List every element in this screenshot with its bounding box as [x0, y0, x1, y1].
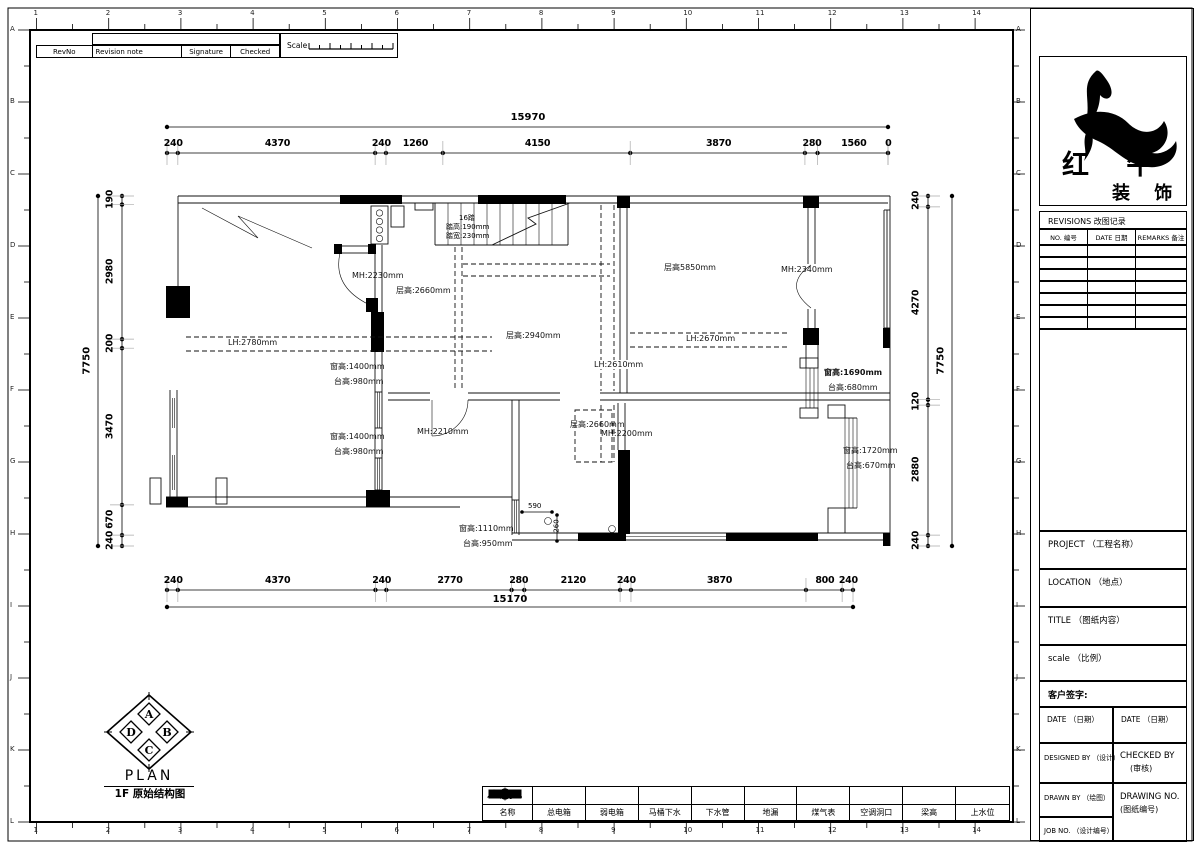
grid-number-bottom: 10	[683, 826, 692, 834]
grid-letter-left: A	[10, 25, 15, 33]
segment-dim-label: 240	[106, 520, 117, 560]
project-label: PROJECT （工程名称）	[1048, 538, 1138, 550]
segment-dim-label: 200	[106, 323, 117, 363]
grid-letter-left: F	[10, 385, 14, 393]
segment-dim-label: 240	[617, 576, 636, 587]
segment-dim-label: 3870	[707, 576, 732, 587]
scale-cell: Scale	[280, 33, 398, 58]
grid-number-bottom: 9	[611, 826, 615, 834]
title-block-panel: 红 牛 装 饰 REVISIONS 改图记录 NO. 编号 DATE 日期 RE…	[1030, 8, 1194, 841]
grid-number-top: 10	[683, 9, 692, 17]
grid-letter-right: B	[1016, 97, 1021, 105]
signature-header: Signature	[182, 46, 232, 57]
overall-dim-bottom: 15170	[485, 594, 535, 606]
grid-number-top: 2	[106, 9, 110, 17]
legend-item-name: 弱电箱	[586, 805, 639, 820]
window-height-label: 窗高:1690mm	[824, 368, 882, 377]
grid-letter-right: D	[1016, 241, 1021, 249]
compass-letter-a: A	[144, 708, 154, 721]
compass-letter-c: C	[145, 744, 154, 757]
job-no-label: JOB NO. （设计编号）	[1044, 825, 1113, 835]
ac-hole-icon	[850, 787, 903, 805]
grid-number-bottom: 2	[106, 826, 110, 834]
gas-meter-icon	[797, 787, 850, 805]
scale-bar	[307, 38, 397, 54]
grid-letter-right: G	[1016, 457, 1021, 465]
segment-dim-label: 800	[815, 576, 834, 587]
project-box: PROJECT （工程名称）	[1039, 531, 1187, 569]
window-height-label: 窗高:1400mm	[330, 362, 385, 371]
window-height-label: 窗高:1110mm	[459, 524, 514, 533]
revisions-title-row: REVISIONS 改图记录	[1039, 211, 1187, 229]
checked-by-label: CHECKED BY	[1120, 751, 1174, 761]
segment-dim-label: 2980	[106, 251, 117, 291]
door-height-label: MH:2210mm	[417, 427, 469, 436]
grid-number-top: 9	[611, 9, 615, 17]
beam-height-label: LH:2610mm	[592, 360, 645, 369]
revision-row	[1039, 281, 1187, 293]
door-height-label: MH:2200mm	[601, 429, 653, 438]
segment-dim-label: 1560	[841, 139, 866, 150]
drawing-no-label: DRAWING NO.	[1120, 792, 1179, 802]
grid-letter-left: I	[10, 601, 12, 609]
segment-dim-label: 1260	[403, 139, 428, 150]
window-height-label: 窗高:1720mm	[843, 446, 898, 455]
segment-dim-label: 4370	[265, 576, 290, 587]
ceiling-height-label: 层高:2660mm	[570, 420, 625, 429]
revno-header: RevNo	[37, 46, 93, 57]
segment-dim-label: 240	[912, 520, 923, 560]
revision-row	[1039, 257, 1187, 269]
beam-height-label: LH:2780mm	[226, 338, 279, 347]
grid-number-top: 13	[900, 9, 909, 17]
grid-number-bottom: 8	[539, 826, 543, 834]
segment-dim-label: 2770	[437, 576, 462, 587]
plan-title: PLAN	[104, 768, 194, 787]
drain-pipe-icon	[692, 787, 745, 805]
grid-number-top: 11	[756, 9, 765, 17]
revision-table: RevNo Revision note Signature Checked	[36, 45, 280, 58]
segment-dim-label: 240	[372, 139, 391, 150]
grid-number-bottom: 4	[250, 826, 254, 834]
grid-letter-right: C	[1016, 169, 1021, 177]
grid-letter-left: K	[10, 745, 15, 753]
rev-col-remarks: REMARKS 备注	[1136, 230, 1186, 244]
sill-height-label: 台高:980mm	[334, 447, 384, 456]
drawing-no-label-cn: (图纸编号)	[1120, 804, 1158, 815]
overall-dim-top: 15970	[503, 112, 553, 124]
grid-letter-left: G	[10, 457, 15, 465]
date-left-box: DATE （日期）	[1039, 707, 1113, 743]
grid-number-top: 4	[250, 9, 254, 17]
grid-letter-right: K	[1016, 745, 1021, 753]
compass-letter-d: D	[126, 726, 136, 739]
segment-dim-label: 280	[509, 576, 528, 587]
segment-dim-label: 240	[912, 181, 923, 221]
drawn-by-box: DRAWN BY （绘图）	[1039, 783, 1113, 817]
segment-dim-label: 240	[839, 576, 858, 587]
toilet-drain-icon	[639, 787, 692, 805]
overall-dim-left: 7750	[81, 341, 93, 381]
grid-letter-left: J	[10, 673, 12, 681]
location-label: LOCATION （地点）	[1048, 576, 1128, 588]
window-height-label: 窗高:1400mm	[330, 432, 385, 441]
revisions-header-row: NO. 编号 DATE 日期 REMARKS 备注	[1039, 229, 1187, 245]
beam-height-icon	[903, 787, 956, 805]
segment-dim-label: 3870	[706, 139, 731, 150]
stair-tread-label: 踏宽:230mm	[446, 232, 489, 240]
grid-number-top: 14	[972, 9, 981, 17]
legend-item-name: 煤气表	[797, 805, 850, 820]
segment-dim-label: 190	[106, 180, 117, 220]
beam-height-label: LH:2670mm	[684, 334, 737, 343]
scale-box: scale （比例）	[1039, 645, 1187, 681]
sill-height-label: 台高:950mm	[463, 539, 513, 548]
grid-number-bottom: 12	[828, 826, 837, 834]
scale-label: Scale	[287, 42, 307, 51]
grid-letter-right: I	[1016, 601, 1018, 609]
segment-dim-label: 280	[803, 139, 822, 150]
legend-item-name: 马桶下水	[639, 805, 692, 820]
stair-count-label: 16踏	[459, 214, 475, 222]
checked-header: Checked	[231, 46, 279, 57]
revisions-title: REVISIONS 改图记录	[1048, 216, 1126, 227]
legend-name-header: 名称	[483, 805, 533, 820]
grid-number-bottom: 7	[467, 826, 471, 834]
grid-number-top: 5	[322, 9, 326, 17]
date-left-label: DATE （日期）	[1047, 714, 1099, 725]
revision-row	[1039, 317, 1187, 329]
client-sign-box: 客户签字:	[1039, 681, 1187, 707]
notes-box	[1039, 329, 1187, 531]
client-sign-label: 客户签字:	[1048, 688, 1088, 701]
revision-row	[1039, 305, 1187, 317]
segment-dim-label: 4150	[525, 139, 550, 150]
plan-subtitle: 1F 原始结构图	[100, 788, 200, 800]
legend-table: 图示 名称 总电箱 弱电箱 马桶下水 下水管 地漏 煤气表 空调洞口 梁高 上水…	[482, 786, 1010, 821]
grid-letter-right: H	[1016, 529, 1021, 537]
legend-item-name: 空调洞口	[850, 805, 903, 820]
ceiling-height-label: 层高:2940mm	[506, 331, 561, 340]
ceiling-height-label: 层高5850mm	[664, 263, 716, 272]
revision-table-empty-row	[92, 33, 280, 45]
overall-dim-right: 7750	[935, 341, 947, 381]
grid-number-top: 12	[828, 9, 837, 17]
orientation-compass-icon: A B C D	[103, 692, 195, 772]
drawing-title-label: TITLE （图纸内容）	[1048, 614, 1125, 626]
low-voltage-box-icon	[586, 787, 639, 805]
drawing-no-box: DRAWING NO. (图纸编号)	[1113, 783, 1187, 842]
water-supply-icon	[956, 787, 1009, 805]
grid-number-bottom: 5	[322, 826, 326, 834]
sill-height-label: 台高:670mm	[846, 461, 896, 470]
grid-letter-left: D	[10, 241, 15, 249]
segment-dim-label: 240	[164, 576, 183, 587]
grid-letter-left: B	[10, 97, 15, 105]
company-name: 红 牛	[1062, 143, 1167, 182]
revision-row	[1039, 293, 1187, 305]
grid-letter-right: L	[1016, 817, 1020, 825]
grid-letter-left: C	[10, 169, 15, 177]
drawing-title-box: TITLE （图纸内容）	[1039, 607, 1187, 645]
drawing-sheet: .w{stroke:#111;stroke-width:0.9;fill:non…	[0, 0, 1200, 849]
legend-item-name: 下水管	[692, 805, 745, 820]
company-logo-box: 红 牛 装 饰	[1039, 56, 1187, 206]
revision-row	[1039, 245, 1187, 257]
grid-number-bottom: 1	[34, 826, 38, 834]
location-box: LOCATION （地点）	[1039, 569, 1187, 607]
segment-dim-label: 0	[885, 139, 891, 150]
legend-item-name: 总电箱	[533, 805, 586, 820]
segment-dim-label: 2120	[561, 576, 586, 587]
rev-col-date: DATE 日期	[1088, 230, 1136, 244]
grid-number-bottom: 11	[756, 826, 765, 834]
segment-dim-label: 240	[164, 139, 183, 150]
legend-item-name: 上水位	[956, 805, 1009, 820]
stair-riser-label: 踏高:190mm	[446, 223, 489, 231]
designed-by-box: DESIGNED BY （设计）	[1039, 743, 1113, 783]
door-height-label: MH:2230mm	[352, 271, 404, 280]
rev-col-no: NO. 编号	[1040, 230, 1088, 244]
revision-row	[1039, 269, 1187, 281]
checked-by-box: CHECKED BY (审核)	[1113, 743, 1187, 783]
door-height-label: MH:2340mm	[781, 265, 833, 274]
grid-letter-right: J	[1016, 673, 1018, 681]
legend-item-name: 地漏	[745, 805, 798, 820]
grid-letter-right: F	[1016, 385, 1020, 393]
sill-height-label: 台高:680mm	[828, 383, 878, 392]
grid-number-bottom: 3	[178, 826, 182, 834]
revision-note-header: Revision note	[93, 46, 182, 57]
sill-height-label: 台高:980mm	[334, 377, 384, 386]
date-right-label: DATE （日期）	[1121, 714, 1173, 725]
drawn-by-label: DRAWN BY （绘图）	[1044, 792, 1110, 802]
grid-letter-left: H	[10, 529, 15, 537]
segment-dim-label: 4270	[912, 283, 923, 323]
grid-letter-left: E	[10, 313, 14, 321]
grid-number-top: 6	[395, 9, 399, 17]
inner-dim-label: 590	[528, 502, 541, 510]
grid-number-top: 3	[178, 9, 182, 17]
grid-letter-right: E	[1016, 313, 1020, 321]
grid-number-top: 7	[467, 9, 471, 17]
inner-dim-label: 260	[553, 519, 561, 532]
compass-letter-b: B	[162, 726, 171, 739]
grid-number-top: 1	[34, 9, 38, 17]
segment-dim-label: 120	[912, 382, 923, 422]
job-no-box: JOB NO. （设计编号）	[1039, 817, 1113, 842]
grid-letter-left: L	[10, 817, 14, 825]
segment-dim-label: 3470	[106, 406, 117, 446]
legend-item-name: 梁高	[903, 805, 956, 820]
grid-number-bottom: 6	[395, 826, 399, 834]
checked-by-label-cn: (审核)	[1130, 763, 1152, 774]
ceiling-height-label: 层高:2660mm	[396, 286, 451, 295]
main-electric-box-icon	[533, 787, 586, 805]
scale-ratio-label: scale （比例）	[1048, 652, 1107, 664]
grid-number-top: 8	[539, 9, 543, 17]
company-subtitle: 装 饰	[1112, 179, 1181, 205]
designed-by-label: DESIGNED BY （设计）	[1044, 752, 1120, 762]
floor-drain-icon	[745, 787, 798, 805]
segment-dim-label: 4370	[265, 139, 290, 150]
grid-number-bottom: 13	[900, 826, 909, 834]
segment-dim-label: 240	[372, 576, 391, 587]
grid-letter-right: A	[1016, 25, 1021, 33]
date-right-box: DATE （日期）	[1113, 707, 1187, 743]
grid-number-bottom: 14	[972, 826, 981, 834]
segment-dim-label: 2880	[912, 450, 923, 490]
